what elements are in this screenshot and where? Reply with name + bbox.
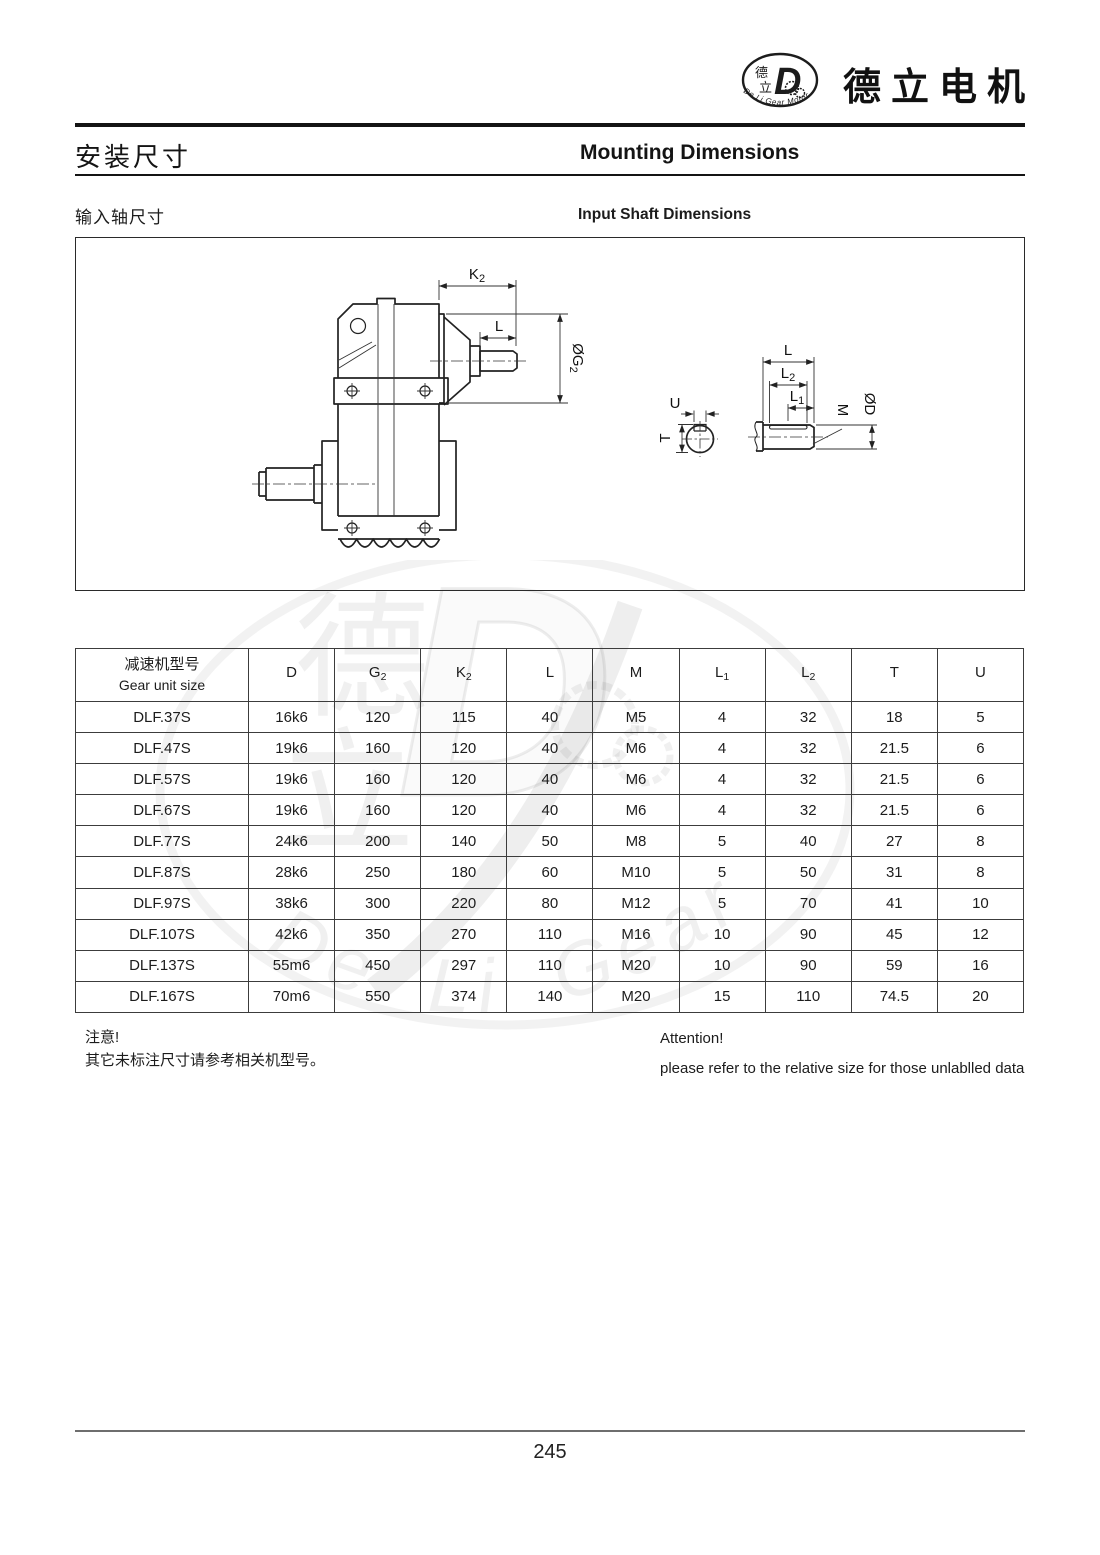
- cell-l: 140: [507, 981, 593, 1012]
- cell-l2: 32: [765, 702, 851, 733]
- cell-l: 60: [507, 857, 593, 888]
- cell-l: 40: [507, 764, 593, 795]
- cell-d: 19k6: [249, 795, 335, 826]
- cell-l2: 32: [765, 764, 851, 795]
- cell-d: 38k6: [249, 888, 335, 919]
- cell-g2: 160: [335, 733, 421, 764]
- note-zh-body: 其它未标注尺寸请参考相关机型号。: [85, 1049, 325, 1072]
- section-title-zh: 输入轴尺寸: [75, 203, 165, 228]
- table-row: DLF.77S24k620014050M8540278: [76, 826, 1024, 857]
- cell-m: M20: [593, 981, 679, 1012]
- title-rule: [75, 174, 1025, 176]
- drawing-panel: K2 L ØG2: [75, 237, 1025, 591]
- cell-u: 12: [937, 919, 1023, 950]
- cell-t: 41: [851, 888, 937, 919]
- col-header-g2: G2: [335, 649, 421, 702]
- cell-l2: 90: [765, 919, 851, 950]
- cell-u: 5: [937, 702, 1023, 733]
- cell-u: 10: [937, 888, 1023, 919]
- cell-t: 18: [851, 702, 937, 733]
- cell-model: DLF.107S: [76, 919, 249, 950]
- note-en-title: Attention!: [660, 1030, 723, 1047]
- cell-t: 21.5: [851, 733, 937, 764]
- cell-l2: 70: [765, 888, 851, 919]
- cell-model: DLF.67S: [76, 795, 249, 826]
- col-header-m: M: [593, 649, 679, 702]
- cell-model: DLF.47S: [76, 733, 249, 764]
- cell-g2: 550: [335, 981, 421, 1012]
- cell-d: 24k6: [249, 826, 335, 857]
- col-header-model: 减速机型号 Gear unit size: [76, 649, 249, 702]
- col-header-model-zh: 减速机型号: [76, 655, 248, 675]
- brand-name: 德立电机: [843, 56, 1035, 111]
- cell-u: 8: [937, 826, 1023, 857]
- dim-label-l-main: L: [495, 318, 503, 335]
- cell-l: 80: [507, 888, 593, 919]
- note-zh: 注意! 其它未标注尺寸请参考相关机型号。: [85, 1026, 325, 1072]
- cell-model: DLF.137S: [76, 950, 249, 981]
- cell-t: 31: [851, 857, 937, 888]
- cell-l1: 5: [679, 857, 765, 888]
- page-title-en: Mounting Dimensions: [580, 141, 799, 165]
- cell-k2: 374: [421, 981, 507, 1012]
- cell-g2: 350: [335, 919, 421, 950]
- cell-d: 16k6: [249, 702, 335, 733]
- cell-k2: 220: [421, 888, 507, 919]
- cell-m: M8: [593, 826, 679, 857]
- cell-k2: 140: [421, 826, 507, 857]
- cell-k2: 270: [421, 919, 507, 950]
- table-row: DLF.57S19k616012040M643221.56: [76, 764, 1024, 795]
- cell-k2: 120: [421, 795, 507, 826]
- note-en-body: please refer to the relative size for th…: [660, 1060, 1024, 1077]
- cell-l2: 50: [765, 857, 851, 888]
- company-logo-icon: D 德 立 De Li Gear Motor: [733, 50, 828, 122]
- cell-m: M20: [593, 950, 679, 981]
- dim-label-l2: L2: [781, 365, 795, 384]
- table-header-row: 减速机型号 Gear unit size D G2 K2 L M L1 L2 T…: [76, 649, 1024, 702]
- cell-t: 74.5: [851, 981, 937, 1012]
- cell-m: M12: [593, 888, 679, 919]
- main-dimension-lines: [439, 280, 568, 403]
- cell-l2: 32: [765, 733, 851, 764]
- cell-l2: 40: [765, 826, 851, 857]
- cell-l1: 4: [679, 702, 765, 733]
- cell-model: DLF.167S: [76, 981, 249, 1012]
- cell-l: 110: [507, 950, 593, 981]
- page-title-zh: 安装尺寸: [75, 137, 191, 174]
- cell-u: 6: [937, 733, 1023, 764]
- cell-k2: 115: [421, 702, 507, 733]
- shaft-side-view: [755, 422, 814, 451]
- cell-u: 8: [937, 857, 1023, 888]
- logo-char-top: 德: [755, 65, 768, 80]
- cell-t: 45: [851, 919, 937, 950]
- cell-d: 28k6: [249, 857, 335, 888]
- cell-l1: 10: [679, 919, 765, 950]
- cell-model: DLF.77S: [76, 826, 249, 857]
- cell-m: M6: [593, 733, 679, 764]
- cell-l: 40: [507, 795, 593, 826]
- cell-m: M6: [593, 795, 679, 826]
- shaft-keyway-sideview: [770, 425, 808, 429]
- header-rule: [75, 123, 1025, 127]
- cell-m: M5: [593, 702, 679, 733]
- table-row: DLF.167S70m6550374140M201511074.520: [76, 981, 1024, 1012]
- footer-rule: [75, 1430, 1025, 1432]
- cell-m: M6: [593, 764, 679, 795]
- cell-l: 50: [507, 826, 593, 857]
- cell-k2: 180: [421, 857, 507, 888]
- cell-l: 40: [507, 733, 593, 764]
- cell-l2: 90: [765, 950, 851, 981]
- cell-m: M10: [593, 857, 679, 888]
- dim-label-t: T: [657, 433, 674, 442]
- dim-label-u: U: [670, 395, 681, 412]
- cell-g2: 160: [335, 795, 421, 826]
- table-row: DLF.67S19k616012040M643221.56: [76, 795, 1024, 826]
- table-row: DLF.97S38k630022080M125704110: [76, 888, 1024, 919]
- cell-u: 20: [937, 981, 1023, 1012]
- cell-model: DLF.87S: [76, 857, 249, 888]
- cell-g2: 450: [335, 950, 421, 981]
- cell-g2: 160: [335, 764, 421, 795]
- table-row: DLF.137S55m6450297110M2010905916: [76, 950, 1024, 981]
- cell-g2: 250: [335, 857, 421, 888]
- dim-label-d: ØD: [861, 393, 878, 416]
- gearbox-outline: [259, 299, 517, 548]
- gearbox-details: [347, 319, 430, 534]
- catalog-page: D 德 立 De Li Gear Motor D 德 立 De Li Gear …: [0, 0, 1100, 1555]
- detail-dimension-labels: U T L L2 L1 M ØD: [657, 342, 878, 443]
- cell-t: 21.5: [851, 795, 937, 826]
- endview-centerlines: [682, 421, 718, 457]
- cell-d: 70m6: [249, 981, 335, 1012]
- cell-d: 55m6: [249, 950, 335, 981]
- cell-k2: 120: [421, 764, 507, 795]
- table-row: DLF.47S19k616012040M643221.56: [76, 733, 1024, 764]
- dimensions-table: 减速机型号 Gear unit size D G2 K2 L M L1 L2 T…: [75, 648, 1024, 1013]
- gearbox-centerlines: [252, 361, 528, 484]
- dim-label-l1: L1: [790, 388, 804, 407]
- cell-l2: 32: [765, 795, 851, 826]
- col-header-l: L: [507, 649, 593, 702]
- cell-model: DLF.57S: [76, 764, 249, 795]
- cell-k2: 297: [421, 950, 507, 981]
- cell-l1: 4: [679, 764, 765, 795]
- cell-l: 110: [507, 919, 593, 950]
- cell-l1: 4: [679, 733, 765, 764]
- dim-label-m: M: [834, 404, 851, 417]
- input-shaft-drawing: K2 L ØG2: [76, 238, 1021, 587]
- cell-g2: 300: [335, 888, 421, 919]
- cell-d: 19k6: [249, 733, 335, 764]
- main-dimension-labels: K2 L ØG2: [469, 266, 586, 373]
- col-header-k2: K2: [421, 649, 507, 702]
- page-number: 245: [75, 1441, 1025, 1464]
- cell-m: M16: [593, 919, 679, 950]
- table-row: DLF.37S16k612011540M5432185: [76, 702, 1024, 733]
- dim-label-k2: K2: [469, 266, 485, 285]
- cell-d: 42k6: [249, 919, 335, 950]
- cell-t: 59: [851, 950, 937, 981]
- cell-model: DLF.37S: [76, 702, 249, 733]
- col-header-t: T: [851, 649, 937, 702]
- col-header-d: D: [249, 649, 335, 702]
- cell-u: 16: [937, 950, 1023, 981]
- cell-u: 6: [937, 764, 1023, 795]
- cell-l: 40: [507, 702, 593, 733]
- cell-g2: 120: [335, 702, 421, 733]
- note-zh-title: 注意!: [85, 1026, 325, 1049]
- col-header-l1: L1: [679, 649, 765, 702]
- table-row: DLF.87S28k625018060M10550318: [76, 857, 1024, 888]
- cell-l1: 4: [679, 795, 765, 826]
- cell-l1: 15: [679, 981, 765, 1012]
- cell-k2: 120: [421, 733, 507, 764]
- logo-char-bottom: 立: [759, 80, 772, 95]
- cell-l2: 110: [765, 981, 851, 1012]
- cell-l1: 5: [679, 888, 765, 919]
- cell-d: 19k6: [249, 764, 335, 795]
- dim-label-g2: ØG2: [567, 343, 586, 372]
- section-title-en: Input Shaft Dimensions: [578, 206, 751, 224]
- col-header-u: U: [937, 649, 1023, 702]
- gearbox-ribs: [339, 304, 433, 536]
- table-row: DLF.107S42k6350270110M1610904512: [76, 919, 1024, 950]
- cell-l1: 5: [679, 826, 765, 857]
- cell-g2: 200: [335, 826, 421, 857]
- cell-model: DLF.97S: [76, 888, 249, 919]
- col-header-l2: L2: [765, 649, 851, 702]
- cell-t: 21.5: [851, 764, 937, 795]
- cell-t: 27: [851, 826, 937, 857]
- cell-l1: 10: [679, 950, 765, 981]
- dim-label-l-detail: L: [784, 342, 792, 359]
- cell-u: 6: [937, 795, 1023, 826]
- col-header-model-en: Gear unit size: [76, 675, 248, 695]
